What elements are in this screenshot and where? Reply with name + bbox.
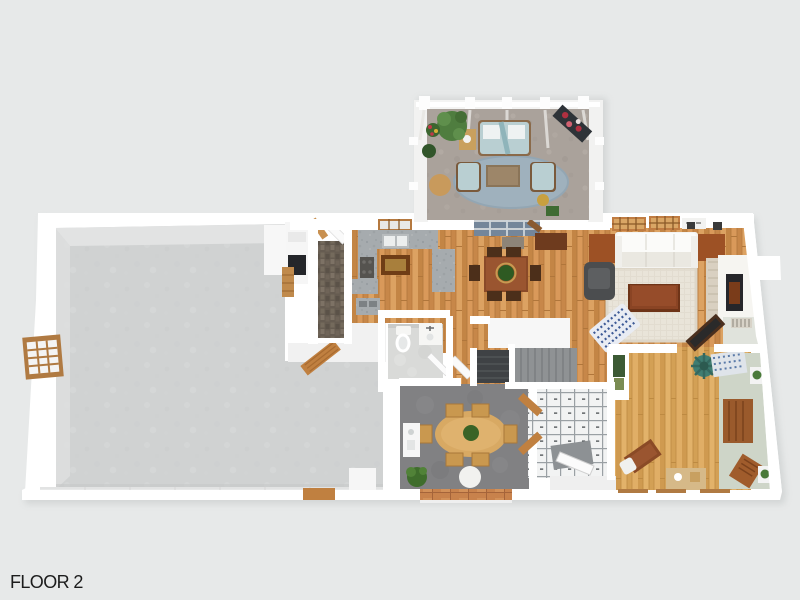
svg-text:FLOOR 2: FLOOR 2: [10, 572, 83, 592]
